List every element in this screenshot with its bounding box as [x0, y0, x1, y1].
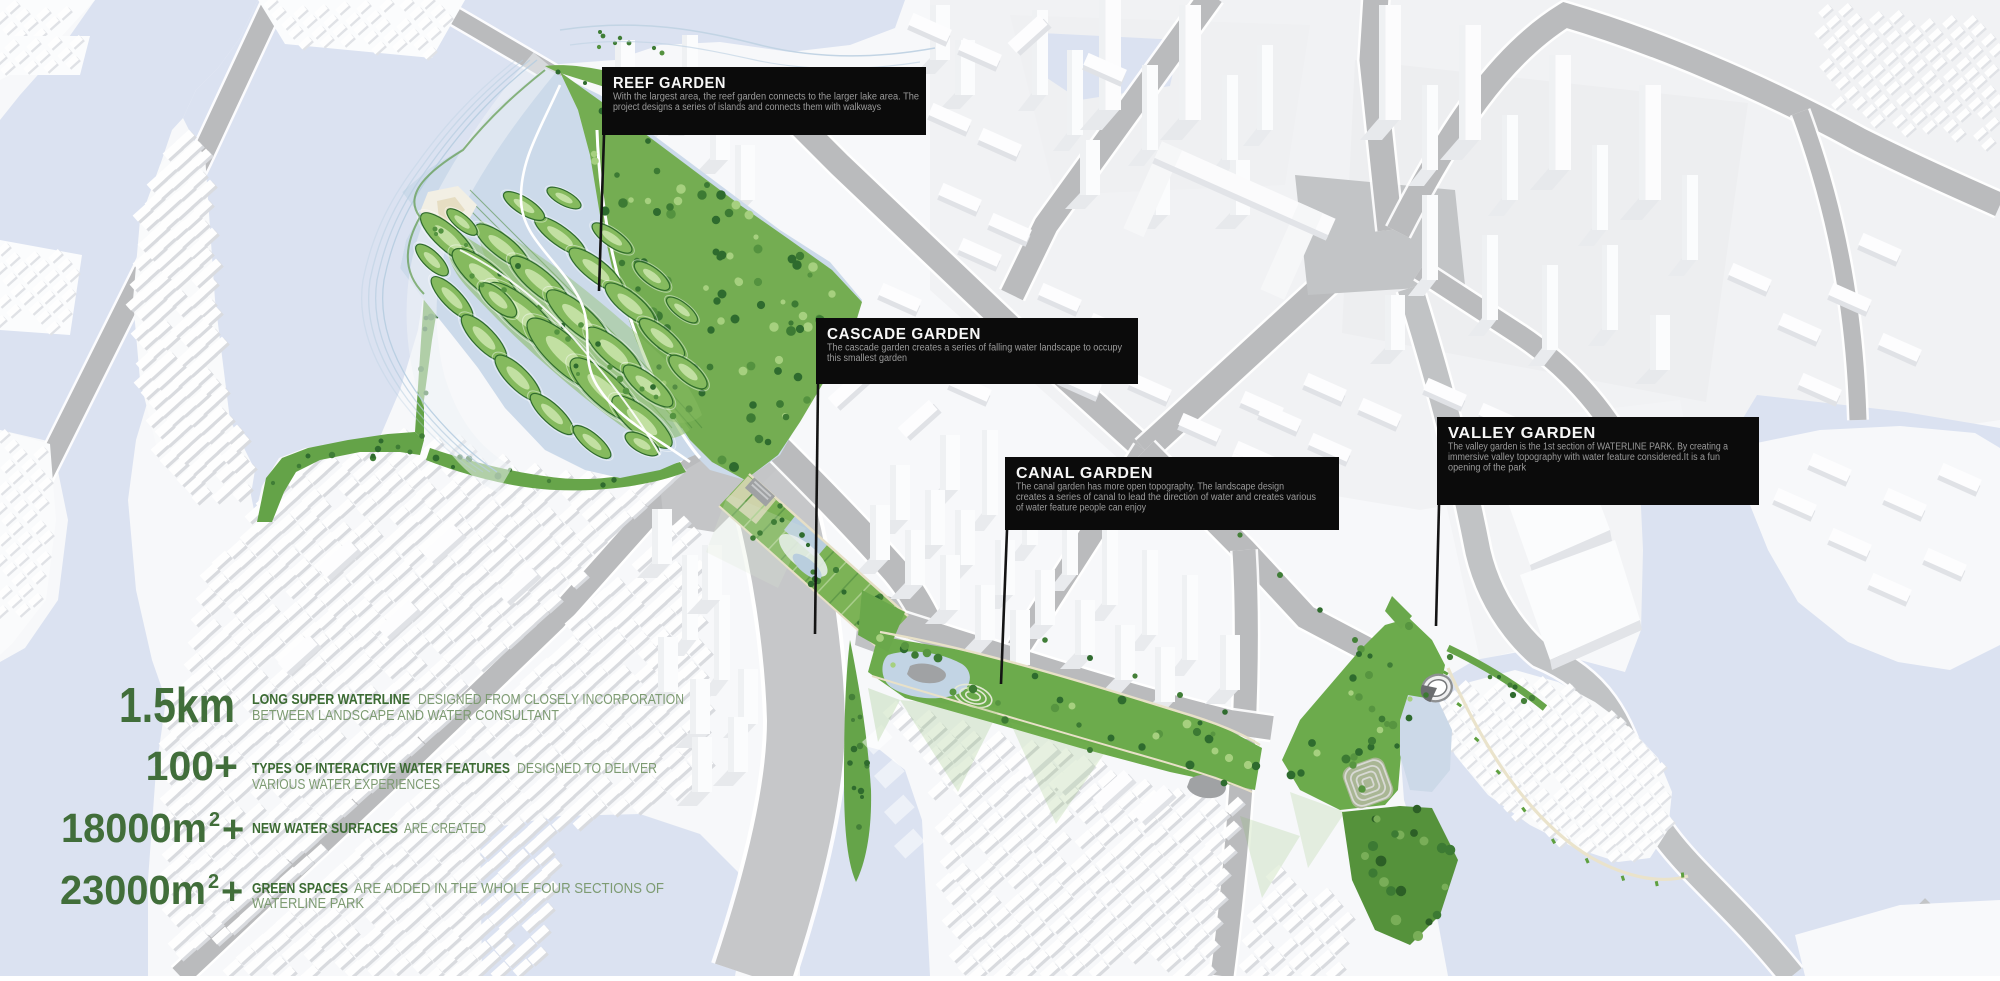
svg-text:this smallest garden: this smallest garden [827, 353, 907, 364]
svg-text:of water feature people can en: of water feature people can enjoy [1016, 503, 1146, 514]
svg-text:CANAL GARDEN: CANAL GARDEN [1016, 465, 1153, 482]
svg-text:1.5km: 1.5km [119, 679, 235, 733]
svg-text:23000m: 23000m [60, 867, 206, 913]
svg-text:The valley garden is the 1st s: The valley garden is the 1st section of … [1448, 442, 1728, 453]
svg-text:CASCADE GARDEN: CASCADE GARDEN [827, 326, 981, 343]
svg-text:+: + [221, 871, 243, 913]
svg-text:project designs a series of is: project designs a series of islands and … [613, 102, 881, 113]
svg-text:opening of the park: opening of the park [1448, 463, 1527, 474]
svg-text:2: 2 [208, 871, 219, 893]
svg-text:The canal garden has more open: The canal garden has more open topograph… [1016, 482, 1284, 493]
svg-text:ARE ADDED IN THE WHOLE FOUR SE: ARE ADDED IN THE WHOLE FOUR SECTIONS OF [354, 880, 664, 897]
svg-text:18000m: 18000m [61, 805, 207, 851]
svg-text:immersive valley topography wi: immersive valley topography with water f… [1448, 452, 1720, 463]
svg-text:The cascade garden creates a s: The cascade garden creates a series of f… [827, 343, 1122, 354]
svg-text:With the largest area, the ree: With the largest area, the reef garden c… [613, 92, 919, 103]
svg-text:TYPES OF INTERACTIVE WATER FEA: TYPES OF INTERACTIVE WATER FEATURES [252, 760, 510, 777]
svg-text:REEF GARDEN: REEF GARDEN [613, 75, 726, 92]
svg-text:DESIGNED FROM CLOSELY INCORPOR: DESIGNED FROM CLOSELY INCORPORATION [418, 691, 684, 708]
svg-text:ARE CREATED: ARE CREATED [404, 820, 486, 837]
svg-text:2: 2 [209, 809, 220, 831]
svg-text:NEW WATER SURFACES: NEW WATER SURFACES [252, 820, 398, 837]
svg-text:BETWEEN LANDSCAPE AND WATER CO: BETWEEN LANDSCAPE AND WATER CONSULTANT [252, 707, 559, 724]
svg-text:WATERLINE PARK: WATERLINE PARK [252, 895, 364, 912]
svg-text:+: + [222, 809, 244, 851]
svg-text:VALLEY GARDEN: VALLEY GARDEN [1448, 425, 1596, 442]
svg-text:100+: 100+ [146, 743, 238, 789]
svg-text:creates a series of canal to l: creates a series of canal to lead the di… [1016, 492, 1316, 503]
svg-text:DESIGNED TO DELIVER: DESIGNED TO DELIVER [517, 760, 657, 777]
svg-text:VARIOUS WATER EXPERIENCES: VARIOUS WATER EXPERIENCES [252, 776, 440, 793]
svg-text:LONG SUPER WATERLINE: LONG SUPER WATERLINE [252, 691, 410, 708]
